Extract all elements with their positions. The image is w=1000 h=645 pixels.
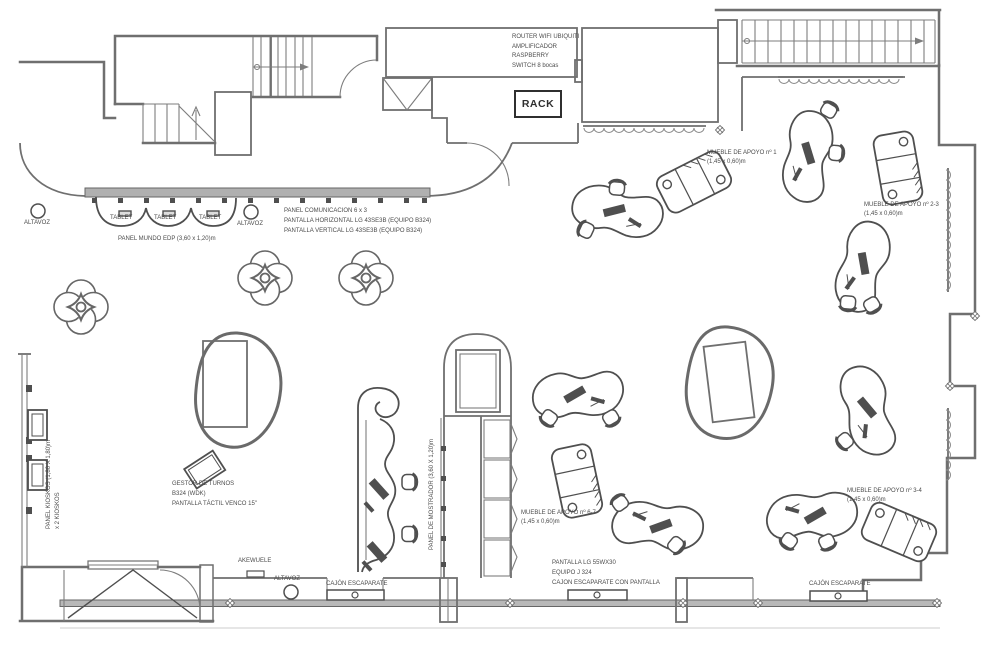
equipment-line: SWITCH 8 bocas (512, 62, 579, 72)
gestor-line: PANTALLA TÁCTIL VENCO 15" (172, 499, 257, 509)
mueble-3-4-label: MUEBLE DE APOYO nº 3-4 (1,45 x 0,60)m (847, 487, 922, 505)
mueble-6-7-label: MUEBLE DE APOYO nº 6-7 (1,45 x 0,60)m (521, 509, 596, 527)
flower-tables (54, 251, 393, 334)
display-block-label: PANTALLA LG 55WX30 EQUIPO J 324 CAJON ES… (552, 558, 660, 588)
gestor-turnos-label: GESTOR DE TURNOS B324 (WDK) PANTALLA TÁC… (172, 479, 257, 509)
mostrador-structure (441, 334, 517, 578)
mueble-3-4-line: MUEBLE DE APOYO nº 3-4 (847, 487, 922, 496)
display-line: PANTALLA LG 55WX30 (552, 558, 660, 568)
panel-comunicacion-label: PANEL COMUNICACION 6 x 3 PANTALLA HORIZO… (284, 206, 431, 236)
panel-mostrador-label: PANEL DE MOSTRADOR (3,60 X 1,20)m (429, 439, 436, 550)
panel-mundo-wall (20, 143, 430, 203)
mueble-2-3-line: (1,45 x 0,60)m (864, 210, 939, 219)
mid-room (575, 28, 718, 122)
panel-comunicacion-line: PANTALLA HORIZONTAL LG 43SE3B (EQUIPO B3… (284, 216, 431, 226)
floor-plan-drawing (0, 0, 1000, 645)
door-mid (340, 37, 377, 97)
mueble-1-line: (1,45 x 0,60)m (707, 158, 777, 167)
equipment-line: RASPBERRY (512, 52, 579, 62)
cajon-left-label: CAJÓN ESCAPARATE (326, 581, 387, 588)
tablet-label-3: TABLET (199, 215, 221, 222)
panel-kioskos-label: PANEL KIOSKOS (1,80 X 1,80)m (46, 440, 53, 529)
equipment-line: ROUTER WIFI UBIQUITI (512, 33, 579, 43)
top-left-walls (20, 36, 377, 155)
stairs-upper-mid (253, 37, 340, 97)
mueble-1-line: MUEBLE DE APOYO nº 1 (707, 149, 777, 158)
floor-plan: ALTAVOZ TABLET TABLET TABLET ALTAVOZ PAN… (0, 0, 1000, 645)
entrance (20, 561, 213, 622)
equipment-line: AMPLIFICADOR (512, 43, 579, 53)
akewuele-label: AKEWUELE (238, 558, 271, 565)
panel-comunicacion-line: PANTALLA VERTICAL LG 43SE3B (EQUIPO B324… (284, 226, 431, 236)
gestor-line: B324 (WDK) (172, 489, 257, 499)
tablet-label-1: TABLET (110, 215, 132, 222)
speaker-label-bottom: ALTAVOZ (274, 576, 300, 583)
panel-mundo-label: PANEL MUNDO EDP (3,60 x 1,20)m (118, 236, 216, 243)
mueble-3-4-line: (1,45 x 0,60)m (847, 496, 922, 505)
speaker-label-top-left: ALTAVOZ (24, 220, 50, 227)
gestor-line: GESTOR DE TURNOS (172, 479, 257, 489)
cajon-right-label: CAJÓN ESCAPARATE (809, 581, 870, 588)
mueble-2-3-line: MUEBLE DE APOYO nº 2-3 (864, 201, 939, 210)
stairs-upper-left (143, 104, 215, 143)
display-line: EQUIPO J 324 (552, 568, 660, 578)
panel-kioskos-count-label: x 2 KIOSKOS (55, 492, 62, 529)
display-line: CAJON ESCAPARATE CON PANTALLA (552, 578, 660, 588)
tablet-label-2: TABLET (154, 215, 176, 222)
mueble-2-3-label: MUEBLE DE APOYO nº 2-3 (1,45 x 0,60)m (864, 201, 939, 219)
kiosk-wall (18, 354, 47, 567)
rack-label: RACK (514, 90, 562, 118)
speaker-label-top-right: ALTAVOZ (237, 221, 263, 228)
attention-counter (358, 388, 417, 572)
panel-comunicacion-line: PANEL COMUNICACION 6 x 3 (284, 206, 431, 216)
mueble-6-7-line: (1,45 x 0,60)m (521, 518, 596, 527)
rack-equipment-list: ROUTER WIFI UBIQUITI AMPLIFICADOR RASPBE… (512, 33, 579, 71)
mueble-6-7-line: MUEBLE DE APOYO nº 6-7 (521, 509, 596, 518)
mueble-1-label: MUEBLE DE APOYO nº 1 (1,45 x 0,60)m (707, 149, 777, 167)
